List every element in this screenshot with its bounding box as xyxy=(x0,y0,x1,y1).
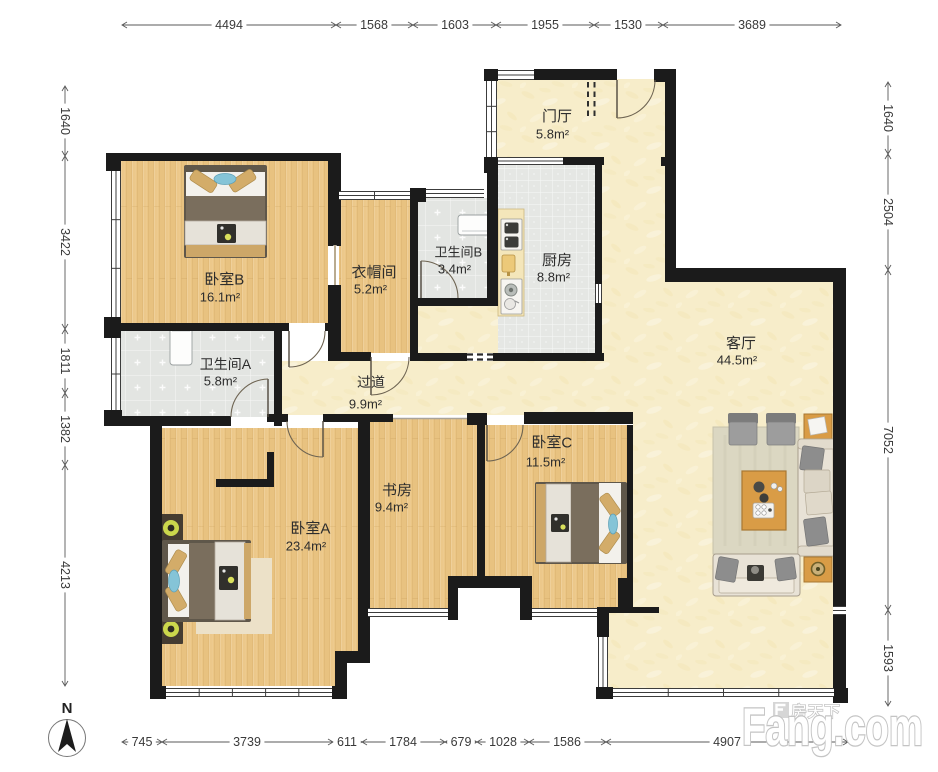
svg-text:5.2m²: 5.2m² xyxy=(354,282,388,297)
svg-text:5.8m²: 5.8m² xyxy=(204,374,238,389)
svg-text:1603: 1603 xyxy=(441,18,469,32)
svg-text:1811: 1811 xyxy=(58,348,72,375)
svg-text:11.5m²: 11.5m² xyxy=(526,455,566,470)
svg-text:16.1m²: 16.1m² xyxy=(200,290,241,305)
svg-text:1955: 1955 xyxy=(531,18,559,32)
svg-text:1028: 1028 xyxy=(489,735,517,749)
svg-text:1530: 1530 xyxy=(614,18,642,32)
svg-text:A: A xyxy=(242,356,252,372)
svg-text:B: B xyxy=(474,245,483,260)
svg-text:1784: 1784 xyxy=(389,735,417,749)
svg-text:1586: 1586 xyxy=(553,735,581,749)
svg-text:1568: 1568 xyxy=(360,18,388,32)
svg-text:611: 611 xyxy=(337,735,357,749)
svg-text:1593: 1593 xyxy=(881,644,895,672)
svg-text:44.5m²: 44.5m² xyxy=(717,353,758,368)
svg-text:2504: 2504 xyxy=(881,198,895,226)
svg-text:7052: 7052 xyxy=(881,426,895,454)
svg-text:N: N xyxy=(62,700,73,717)
svg-text:1382: 1382 xyxy=(58,415,72,443)
svg-text:4213: 4213 xyxy=(58,561,72,589)
svg-text:9.9m²: 9.9m² xyxy=(349,397,383,412)
svg-text:3422: 3422 xyxy=(58,228,72,256)
svg-text:9.4m²: 9.4m² xyxy=(375,500,409,515)
svg-text:A: A xyxy=(320,520,330,537)
svg-text:745: 745 xyxy=(132,735,153,749)
svg-text:Fang.com: Fang.com xyxy=(742,698,923,757)
svg-text:C: C xyxy=(561,434,572,451)
svg-text:B: B xyxy=(234,271,244,288)
svg-text:5.8m²: 5.8m² xyxy=(536,127,570,142)
svg-text:3.4m²: 3.4m² xyxy=(438,262,472,277)
svg-text:1640: 1640 xyxy=(881,104,895,132)
svg-text:1640: 1640 xyxy=(58,107,72,135)
svg-text:23.4m²: 23.4m² xyxy=(286,539,327,554)
svg-text:8.8m²: 8.8m² xyxy=(537,270,571,285)
svg-text:4494: 4494 xyxy=(215,18,243,32)
svg-text:3739: 3739 xyxy=(233,735,261,749)
svg-text:4907: 4907 xyxy=(713,735,741,749)
svg-text:3689: 3689 xyxy=(738,18,766,32)
svg-text:679: 679 xyxy=(451,735,472,749)
